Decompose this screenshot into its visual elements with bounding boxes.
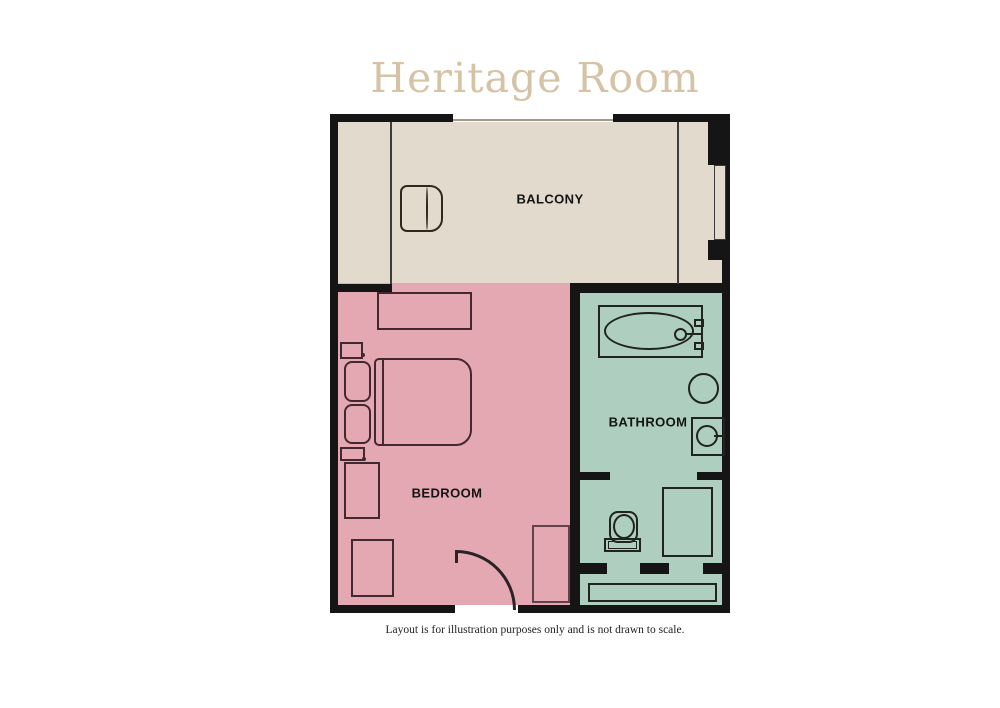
shower-icon [662,487,713,557]
wall-bathroom-mid-right [697,472,730,480]
balcony-label: BALCONY [516,192,583,207]
wall-window-jamb-top [708,122,730,165]
bathtub-tap-top [694,319,704,327]
balcony-railing [453,119,613,121]
lamp-dot-bottom [362,457,366,461]
wall-bedroom-bathroom [570,283,580,613]
bathtub-tap-bottom [694,342,704,350]
wall-top-right [613,114,730,122]
wall-top-left [330,114,453,122]
caption: Layout is for illustration purposes only… [300,624,770,636]
bathtub-faucet-line [686,333,703,335]
pillow-top [344,361,371,402]
console-table [377,292,472,330]
closet-icon [588,583,717,602]
bench [351,539,394,597]
wall-bathroom-low-1 [580,563,607,574]
wall-left [330,114,338,613]
page-title: Heritage Room [335,54,735,102]
wall-window-jamb-bottom [708,240,730,260]
window [714,165,726,240]
wall-bathroom-low-2 [640,563,669,574]
wall-balcony-bedroom [330,284,392,292]
stool-icon [688,373,719,404]
floor-plan: BALCONY BEDROOM BATHROOM [330,114,730,613]
lamp-dot-top [361,353,365,357]
wall-bottom-right [518,605,730,613]
armchair-seat-line [426,187,428,230]
balcony-divider-right [677,122,679,284]
nightstand-top [340,342,363,359]
wall-bottom-left [330,605,455,613]
double-bed-icon [374,358,472,446]
bedroom-label: BEDROOM [412,486,483,501]
vanity-sink-tap-line [714,435,725,437]
balcony-divider-left [390,122,392,284]
wall-bathroom-top [573,283,730,293]
bed-sheet-line [382,360,384,444]
door-leaf-stub [455,550,458,563]
wardrobe [532,525,570,603]
toilet-bowl [613,514,635,539]
toilet-tank-inner [608,541,637,549]
wall-bathroom-mid-left [580,472,610,480]
bathroom-label: BATHROOM [609,415,688,430]
armchair-icon [400,185,443,232]
pillow-bottom [344,404,371,444]
side-table [344,462,380,519]
wall-bathroom-low-3 [703,563,730,574]
